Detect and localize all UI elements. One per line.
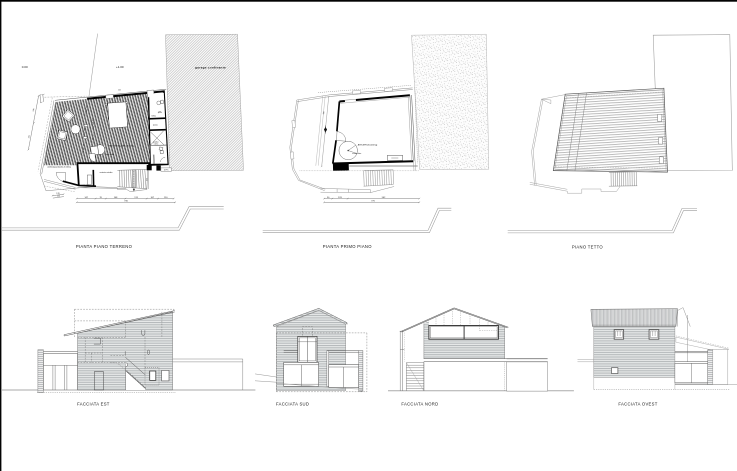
svg-text:MONOLOCALE 27.00mq: MONOLOCALE 27.00mq [109, 145, 134, 148]
svg-text:letto matr.: letto matr. [106, 153, 114, 156]
svg-text:0.00: 0.00 [22, 65, 28, 69]
svg-text:+1.00: +1.00 [116, 65, 124, 69]
svg-text:atelier/guardaroba 5.00mq: atelier/guardaroba 5.00mq [47, 166, 70, 169]
svg-text:176: 176 [147, 178, 149, 181]
svg-text:ATELIER (34.00mq): ATELIER (34.00mq) [358, 144, 378, 147]
svg-text:garage confinante: garage confinante [195, 66, 226, 70]
svg-text:330: 330 [323, 111, 325, 114]
svg-text:scala chioc.: scala chioc. [352, 153, 362, 155]
svg-text:PIANTA PRIMO PIANO: PIANTA PRIMO PIANO [323, 244, 373, 249]
svg-text:120: 120 [57, 196, 60, 198]
svg-text:FACCIATA EST: FACCIATA EST [77, 402, 110, 407]
svg-text:FACCIATA SUD: FACCIATA SUD [276, 402, 309, 407]
svg-text:cabina: cabina [154, 143, 159, 145]
svg-text:armadio: armadio [83, 185, 89, 187]
svg-text:FACCIATA OVEST: FACCIATA OVEST [618, 402, 657, 407]
svg-text:entrata+studio: entrata+studio [100, 171, 114, 174]
svg-text:PIANO TETTO: PIANO TETTO [572, 245, 604, 250]
svg-text:FACCIATA NORD: FACCIATA NORD [401, 402, 438, 407]
svg-text:PIANTA PIANO TERRENO: PIANTA PIANO TERRENO [76, 244, 133, 249]
